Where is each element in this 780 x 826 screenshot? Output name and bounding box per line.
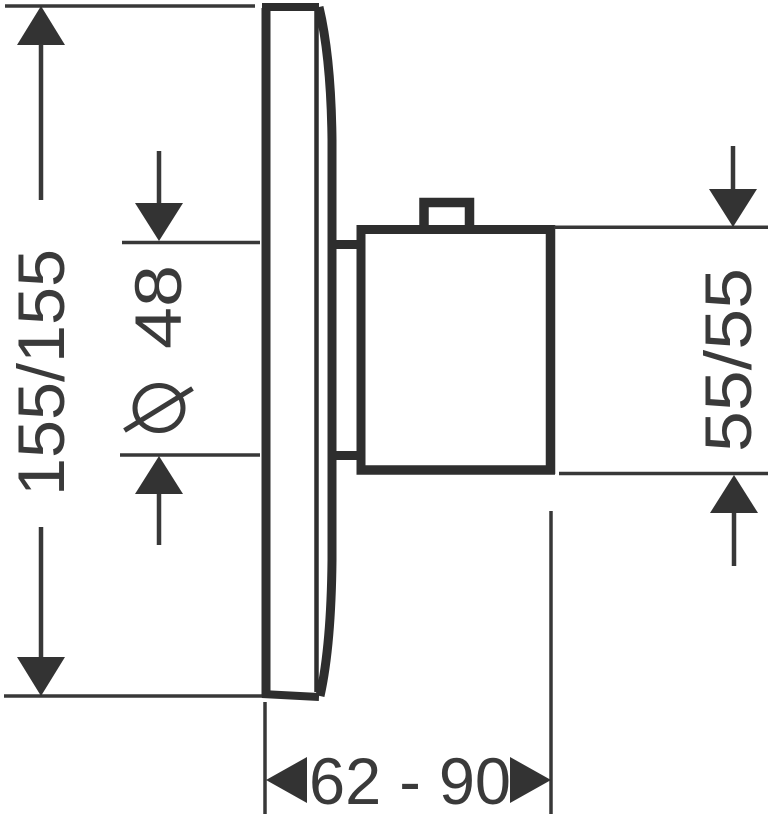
svg-text:55/55: 55/55	[691, 268, 765, 452]
svg-text:62 - 90: 62 - 90	[309, 744, 511, 818]
svg-text:155/155: 155/155	[4, 249, 78, 496]
svg-text:48: 48	[121, 265, 195, 349]
